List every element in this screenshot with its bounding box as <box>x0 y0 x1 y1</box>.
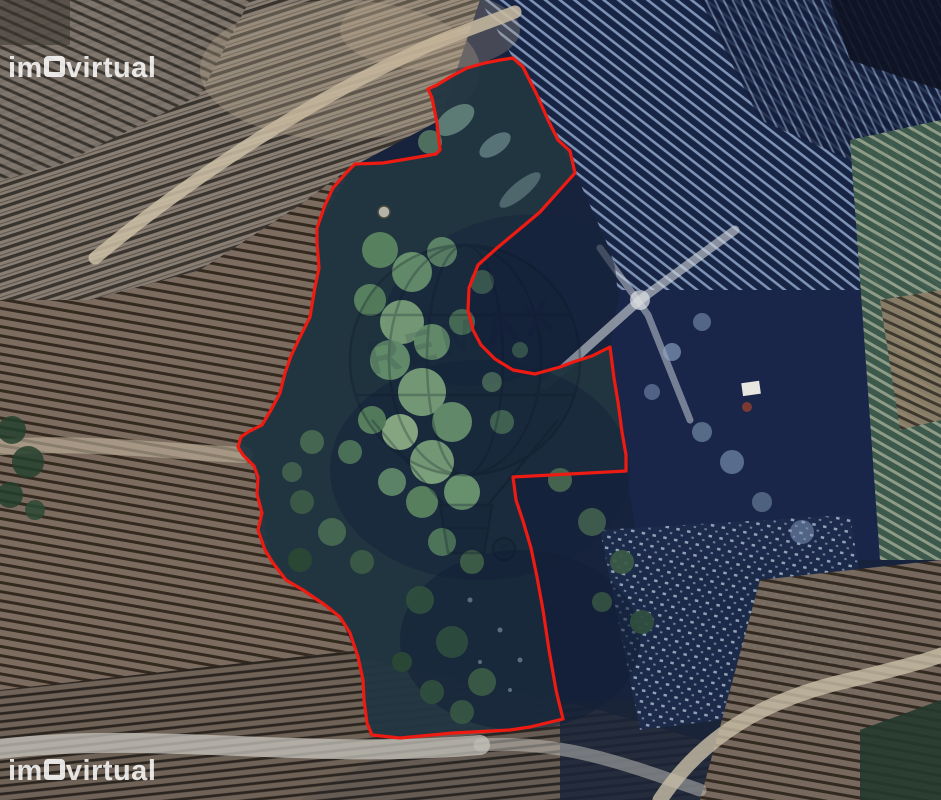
watermark-text-virtual: virtual <box>66 52 157 84</box>
square-o-glyph <box>44 759 65 780</box>
watermark-text-im: im <box>8 52 43 84</box>
imovirtual-watermark-top-left: imvirtual <box>8 54 156 83</box>
watermark-text-im: im <box>8 755 43 787</box>
watermark-text-virtual: virtual <box>66 755 157 787</box>
square-o-glyph <box>44 56 65 77</box>
terrain-satellite-image: © REMAX <box>0 0 941 800</box>
imovirtual-watermark-bottom-left: imvirtual <box>8 757 156 786</box>
copyright-icon: © <box>499 541 510 557</box>
satellite-photo: © REMAX imvirtual imvirtual <box>0 0 941 800</box>
